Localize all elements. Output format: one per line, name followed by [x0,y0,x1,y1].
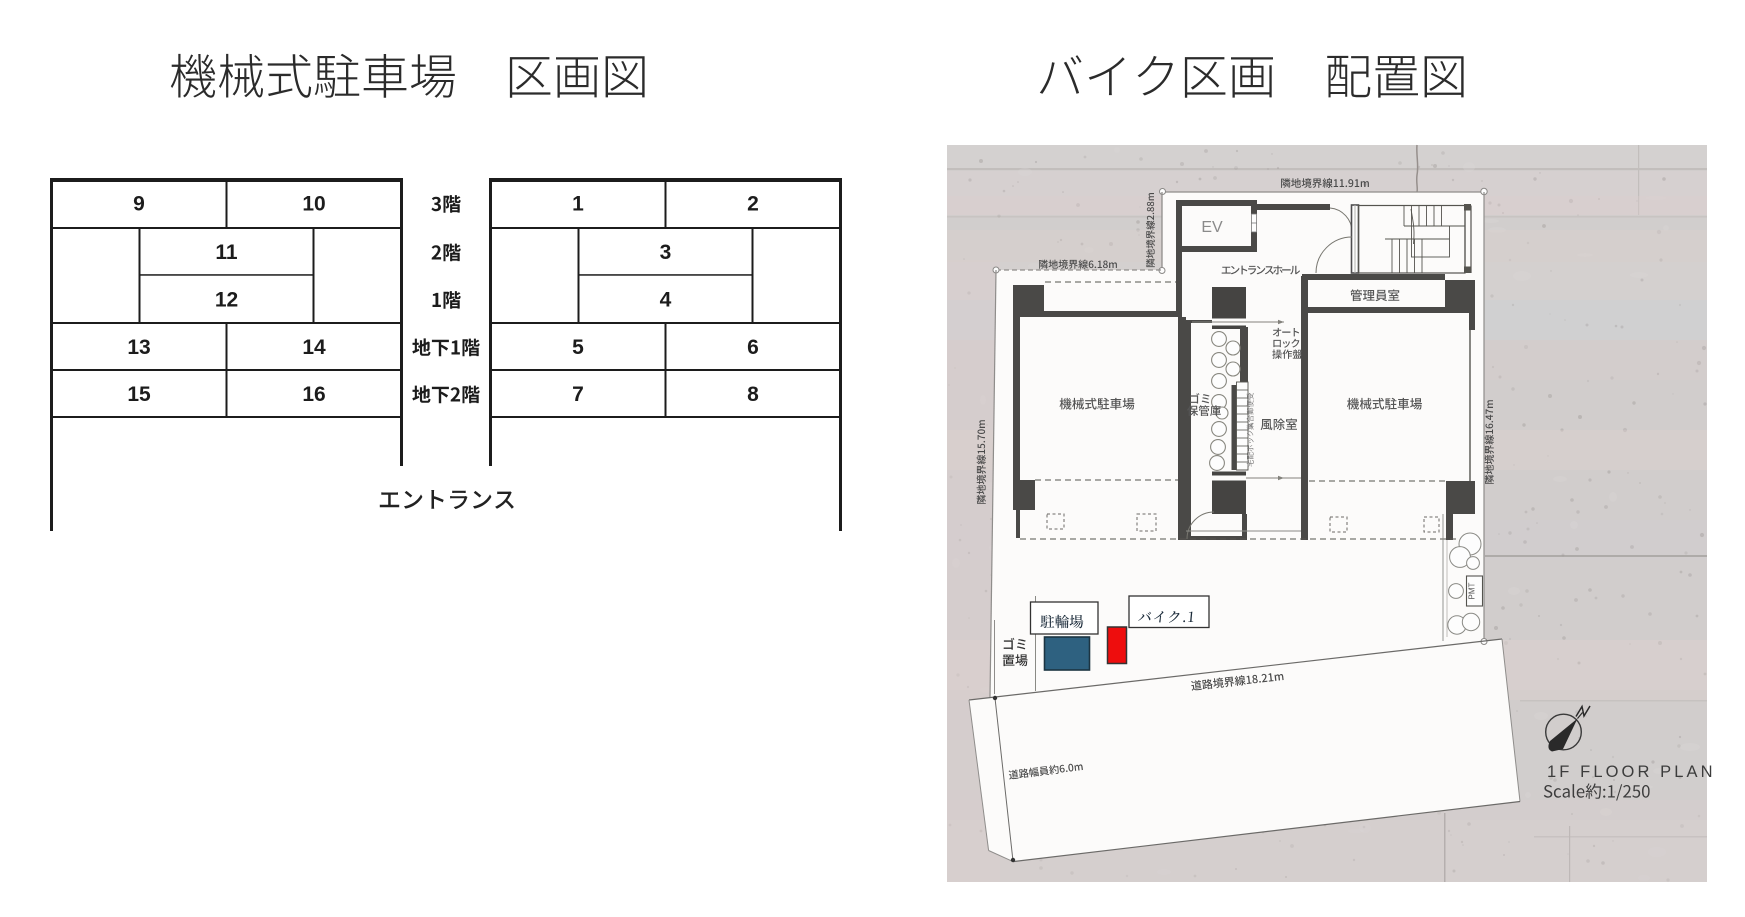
svg-text:7: 7 [572,383,584,406]
svg-text:PMT: PMT [1468,582,1477,599]
svg-text:16: 16 [302,383,325,406]
svg-text:2: 2 [747,193,759,216]
svg-text:9: 9 [133,193,145,216]
svg-text:EV: EV [1201,219,1223,236]
svg-text:3: 3 [660,241,672,264]
svg-text:14: 14 [302,336,326,359]
svg-text:10: 10 [302,193,325,216]
svg-text:5: 5 [572,336,584,359]
svg-text:15: 15 [127,383,151,406]
svg-text:8: 8 [747,383,759,406]
svg-text:1: 1 [572,193,584,216]
svg-text:11: 11 [215,241,238,264]
svg-text:13: 13 [127,336,150,359]
svg-text:1F FLOOR PLAN: 1F FLOOR PLAN [1547,763,1716,781]
svg-text:4: 4 [660,289,672,312]
svg-text:6: 6 [747,336,759,359]
svg-text:12: 12 [215,289,238,312]
